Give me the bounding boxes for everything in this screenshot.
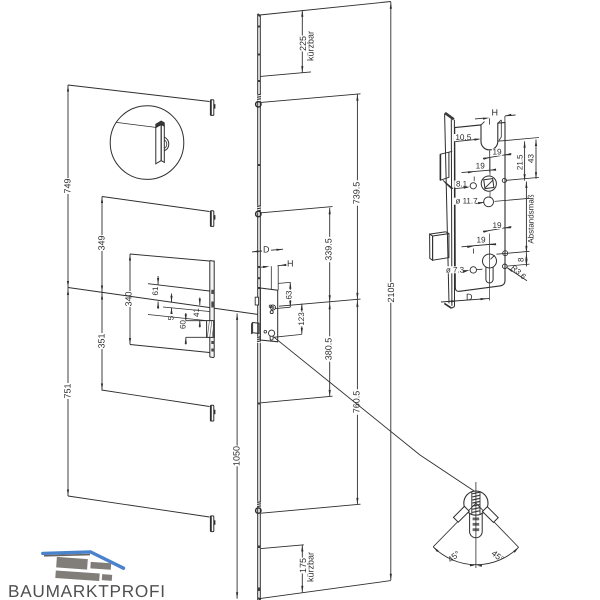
svg-text:123: 123 (297, 312, 306, 326)
svg-text:21.5: 21.5 (515, 154, 524, 170)
svg-text:Abstandsmaß: Abstandsmaß (526, 194, 535, 243)
svg-text:43: 43 (527, 154, 536, 163)
svg-text:kürzbar: kürzbar (305, 552, 315, 582)
svg-text:349: 349 (97, 235, 107, 250)
svg-text:ø 11.7: ø 11.7 (455, 197, 478, 206)
svg-text:61: 61 (151, 286, 160, 295)
svg-text:751: 751 (63, 383, 73, 398)
svg-text:380.5: 380.5 (324, 338, 334, 361)
svg-text:749: 749 (63, 178, 73, 193)
svg-text:19: 19 (476, 236, 486, 245)
svg-text:H: H (287, 258, 294, 268)
svg-text:D: D (263, 244, 270, 254)
svg-text:41: 41 (192, 308, 201, 317)
svg-text:1050: 1050 (232, 446, 242, 466)
svg-text:19: 19 (476, 161, 486, 170)
svg-text:ø 7.3: ø 7.3 (446, 265, 465, 274)
svg-text:760.5: 760.5 (352, 391, 362, 414)
svg-text:kürzbar: kürzbar (305, 31, 315, 61)
svg-text:2105: 2105 (386, 282, 396, 302)
svg-text:BAUMARKTPROFI: BAUMARKTPROFI (8, 581, 166, 600)
svg-text:H: H (491, 107, 498, 117)
svg-text:63: 63 (284, 290, 293, 299)
svg-text:19: 19 (492, 148, 502, 157)
svg-text:340: 340 (123, 291, 133, 306)
svg-text:739.5: 739.5 (352, 182, 362, 205)
svg-text:19: 19 (492, 221, 502, 230)
svg-text:8: 8 (516, 257, 525, 262)
svg-text:5: 5 (167, 315, 176, 320)
svg-text:339.5: 339.5 (324, 238, 334, 261)
svg-text:351: 351 (97, 333, 107, 348)
